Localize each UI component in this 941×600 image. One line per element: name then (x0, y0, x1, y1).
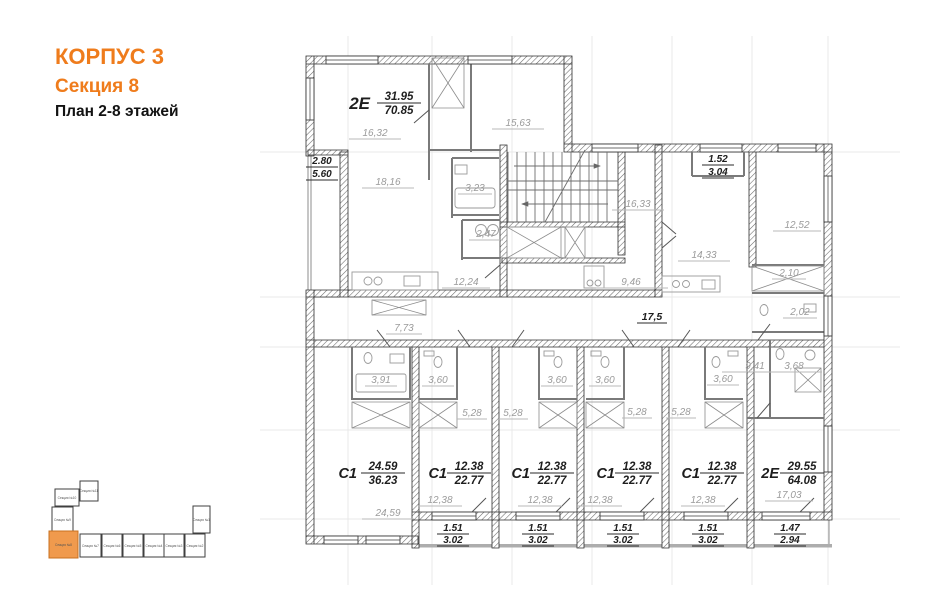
room-area: 9,41 (745, 361, 764, 372)
room-area-label: 2,47 (469, 229, 503, 240)
apartment-living-area: 29.55 (787, 461, 817, 473)
room-area-label: 3,60 (422, 375, 454, 386)
bathroom-fixtures (591, 351, 609, 368)
balcony-area-total: 3.02 (613, 535, 633, 546)
minimap-section-label: Секция №7 (82, 544, 99, 548)
balcony-area: 1.51 (528, 523, 548, 534)
room-area: 3,60 (713, 374, 733, 385)
room-area-label: 18,16 (362, 177, 414, 188)
room-area-label: 24,59 (362, 508, 414, 519)
minimap-section-label: Секция №5 (125, 544, 142, 548)
balcony-area-total: 2.94 (779, 535, 800, 546)
apartment-living-area: 31.95 (385, 91, 414, 103)
apartment-type: С1 (428, 466, 447, 482)
room-area: 17,03 (776, 490, 801, 501)
apartment-total-area: 22.77 (622, 475, 652, 487)
balcony-label: 1.47 2.94 (774, 523, 806, 546)
balcony-area: 1.47 (780, 523, 800, 534)
room-area: 5,28 (503, 408, 523, 419)
room-area-label: 5,28 (666, 407, 696, 418)
balcony-label: 1.52 3.04 (702, 154, 734, 178)
room-area: 3,68 (784, 361, 804, 372)
apartment-label: С1 12.38 22.77 (428, 461, 491, 487)
room-area-label: 14,33 (678, 250, 730, 261)
room-area-label: 3,91 (365, 375, 397, 386)
minimap-section: Секция №10 (55, 489, 79, 506)
room-area-label: 3,68 (722, 361, 822, 372)
minimap-section-label: Секция №6 (104, 544, 121, 548)
minimap: Секция №11 Секция №10 Секция №9 Секция №… (49, 481, 210, 558)
window (324, 536, 358, 544)
minimap-section-highlighted: Секция №8 (49, 531, 78, 558)
minimap-section-label: Секция №4 (146, 544, 163, 548)
apartment-type: С1 (596, 466, 615, 482)
minimap-section-label: Секция №2 (187, 544, 204, 548)
minimap-section-label: Секция №11 (80, 489, 99, 493)
room-area: 16,32 (362, 128, 387, 139)
minimap-section: Секция №3 (164, 534, 184, 557)
apartment-type: С1 (511, 466, 530, 482)
room-area-label: 15,63 (492, 118, 544, 129)
balcony-area-total: 3.02 (698, 535, 718, 546)
balcony-label: 1.51 3.02 (522, 523, 554, 546)
room-area: 2,47 (475, 229, 496, 240)
apartment-label: 2Е 29.55 64.08 (760, 461, 824, 487)
window (468, 56, 512, 64)
apartment-type: 2Е (348, 94, 370, 113)
apartment-label: С1 24.59 36.23 (338, 461, 405, 487)
room-area-label: 12,38 (418, 495, 462, 506)
room-area-label: 7,73 (386, 323, 422, 334)
room-area-label: 12,24 (442, 277, 490, 288)
staircase (507, 150, 618, 222)
window (778, 144, 816, 152)
room-area: 16,33 (625, 199, 650, 210)
minimap-section: Секция №9 (52, 507, 73, 532)
room-area: 3,60 (428, 375, 448, 386)
window (592, 144, 638, 152)
corridor-area-label: 17,5 (637, 311, 667, 323)
apartment-living-area: 12.38 (623, 461, 652, 473)
minimap-section-label: Секция №8 (55, 543, 72, 547)
room-area-label: 16,32 (349, 128, 401, 139)
room-area: 3,91 (371, 375, 390, 386)
window (762, 512, 810, 520)
room-area-label: 3,60 (541, 375, 573, 386)
room-area: 7,73 (394, 323, 414, 334)
minimap-section-label: Секция №1 (193, 518, 210, 522)
apartment-label: С1 12.38 22.77 (596, 461, 659, 487)
apartment-total-area: 64.08 (788, 475, 817, 487)
elevators (507, 227, 604, 288)
apartment-type: С1 (681, 466, 700, 482)
room-area-label: 5,28 (457, 408, 487, 419)
room-area: 12,24 (453, 277, 478, 288)
apartment-total-area: 22.77 (537, 475, 567, 487)
apartment-total-area: 70.85 (385, 105, 414, 117)
minimap-section: Секция №11 (80, 481, 99, 501)
bathroom-fixtures (776, 349, 815, 361)
balcony-area: 1.52 (708, 154, 728, 165)
window (684, 512, 728, 520)
floor-plan-page: КОРПУС 3 Секция 8 План 2-8 этажей (0, 0, 941, 600)
room-area-label: 2,02 (783, 307, 817, 318)
room-area: 18,16 (375, 177, 400, 188)
window (306, 78, 314, 120)
room-area-label: 12,38 (681, 495, 725, 506)
apartment-type: 2Е (760, 466, 780, 482)
apartment-living-area: 24.59 (368, 461, 398, 473)
room-area-label: 17,03 (765, 490, 813, 501)
apartment-total-area: 22.77 (707, 475, 737, 487)
minimap-section-label: Секция №3 (166, 544, 183, 548)
room-area: 3,60 (547, 375, 567, 386)
room-area: 9,46 (621, 277, 641, 288)
kitchen-counter (662, 276, 720, 292)
room-area: 12,38 (427, 495, 452, 506)
window (824, 176, 832, 222)
window (432, 512, 476, 520)
room-area-label: 12,52 (773, 220, 821, 231)
apartment-total-area: 36.23 (369, 475, 398, 487)
balcony-area-total: 3.04 (708, 167, 728, 178)
apartment-living-area: 12.38 (708, 461, 737, 473)
window (700, 144, 742, 152)
room-area: 14,33 (691, 250, 716, 261)
balcony-label: 1.51 3.02 (437, 523, 469, 546)
balcony-area: 2.80 (311, 156, 332, 167)
apartment-label: С1 12.38 22.77 (681, 461, 744, 487)
minimap-section: Секция №2 (185, 534, 205, 557)
balcony-area: 1.51 (443, 523, 463, 534)
balcony-area-total: 3.02 (528, 535, 548, 546)
minimap-section: Секция №7 (80, 534, 101, 557)
room-area-label: 9,41 (745, 361, 764, 372)
balcony-area: 1.51 (698, 523, 718, 534)
room-area: 12,52 (784, 220, 809, 231)
window (824, 296, 832, 336)
window (516, 512, 560, 520)
room-area-label: 3,60 (589, 375, 621, 386)
room-area-label: 3,23 (458, 183, 492, 194)
apartment-label: С1 12.38 22.77 (511, 461, 574, 487)
room-area-label: 2,10 (772, 268, 806, 279)
room-area-label: 12,38 (518, 495, 562, 506)
corridor-area: 17,5 (642, 311, 663, 323)
room-area: 3,60 (595, 375, 615, 386)
balcony-area: 1.51 (613, 523, 633, 534)
room-area: 2,02 (789, 307, 810, 318)
minimap-section: Секция №6 (102, 534, 122, 557)
bathroom-fixtures (544, 351, 562, 368)
window (366, 536, 400, 544)
kitchen-counter (352, 272, 438, 290)
minimap-section-label: Секция №10 (58, 496, 77, 500)
room-area: 5,28 (462, 408, 482, 419)
bathroom-fixtures (424, 351, 442, 368)
room-area-label: 12,38 (578, 495, 622, 506)
room-area: 24,59 (374, 508, 400, 519)
apartment-living-area: 12.38 (455, 461, 484, 473)
window (326, 56, 378, 64)
balcony-label: 1.51 3.02 (607, 523, 639, 546)
bathroom-fixtures (712, 351, 738, 368)
room-area: 5,28 (627, 407, 647, 418)
minimap-section: Секция №4 (144, 534, 164, 557)
service-room (584, 266, 604, 288)
room-area: 12,38 (690, 495, 715, 506)
minimap-section-label: Секция №9 (54, 518, 71, 522)
apartment-total-area: 22.77 (454, 475, 484, 487)
room-area: 15,63 (505, 118, 530, 129)
room-area: 12,38 (587, 495, 612, 506)
room-area: 3,23 (465, 183, 485, 194)
minimap-section: Секция №1 (193, 506, 210, 533)
room-area-label: 5,28 (622, 407, 652, 418)
minimap-section: Секция №5 (123, 534, 143, 557)
floor-plan-drawing: 2Е 31.95 70.85 С1 24.59 36.23 С1 12.38 2… (0, 0, 941, 600)
balcony-label: 1.51 3.02 (692, 523, 724, 546)
room-area: 5,28 (671, 407, 691, 418)
room-area-label: 3,60 (707, 374, 739, 385)
window (600, 512, 644, 520)
balcony-area-total: 3.02 (443, 535, 463, 546)
apartment-label: 2Е 31.95 70.85 (348, 91, 421, 117)
room-area: 12,38 (527, 495, 552, 506)
window (824, 426, 832, 472)
room-area-label: 5,28 (498, 408, 528, 419)
balcony-area-total: 5.60 (312, 169, 332, 180)
apartment-living-area: 12.38 (538, 461, 567, 473)
room-area: 2,10 (778, 268, 799, 279)
apartment-type: С1 (338, 466, 357, 482)
